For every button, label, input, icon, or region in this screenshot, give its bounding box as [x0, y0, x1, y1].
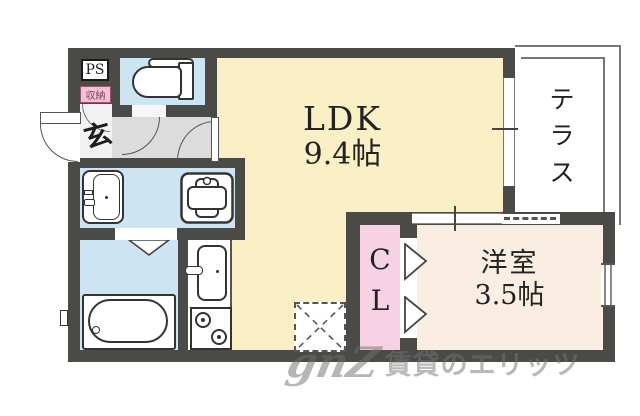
sliding-door-ldk-western — [412, 213, 502, 224]
entrance-door-arc — [40, 124, 78, 162]
terrace-label: テラス — [547, 82, 577, 191]
washbasin-icon — [82, 170, 124, 224]
wall-closet-left — [346, 212, 360, 352]
pipe-space-label: PS — [81, 59, 109, 81]
window-terrace-tick — [492, 128, 518, 130]
watermark-text: 賃貸のエリッツ — [385, 343, 581, 382]
ldk-size: 9.4帖 — [250, 138, 435, 173]
closet-text: CL — [369, 243, 390, 317]
window-ldk-terrace — [503, 78, 515, 186]
window-pane-line — [610, 265, 612, 305]
wall-top — [68, 48, 515, 58]
western-name: 洋室 — [422, 248, 597, 280]
toilet-icon — [132, 58, 198, 102]
sliding-door-tick — [454, 206, 456, 231]
window-western-right — [601, 263, 615, 307]
watermark: gnZ 賃貸のエリッツ — [288, 334, 588, 390]
bathtub-icon — [82, 294, 176, 350]
pipe-space-text: PS — [85, 62, 104, 78]
hall-door-leaf — [211, 117, 219, 162]
bathroom-door-gap — [115, 228, 177, 240]
ldk-name: LDK — [250, 100, 435, 138]
window-pane-line — [604, 265, 606, 305]
washing-machine-pan-icon — [180, 172, 234, 224]
wall-toilet-right — [205, 48, 217, 117]
dashed-window-line — [504, 217, 556, 220]
bathroom-folding-door-icon — [128, 240, 170, 257]
wall-closet-divider-top — [400, 225, 417, 238]
western-label: 洋室 3.5帖 — [422, 248, 597, 313]
dashed-window-western-terrace — [502, 214, 560, 224]
closet-label: CL — [366, 240, 394, 321]
entrance-text: 玄 — [79, 111, 115, 156]
ldk-label: LDK 9.4帖 — [250, 100, 435, 172]
kitchen-sink-icon — [185, 243, 231, 303]
wall-left — [68, 48, 80, 362]
elitz-logo-icon: gnZ — [283, 338, 384, 387]
terrace-text: テラス — [549, 85, 574, 187]
storage-label: 収納 — [80, 86, 111, 103]
storage-text: 収納 — [86, 87, 106, 102]
toilet-door — [132, 105, 166, 117]
western-size: 3.5帖 — [422, 280, 597, 312]
floor-plan: PS 収納 玄 LDK 9.4帖 テラス CL 洋室 3.5帖 gnZ 賃貸のエ… — [0, 0, 640, 416]
stove-icon — [190, 307, 232, 350]
